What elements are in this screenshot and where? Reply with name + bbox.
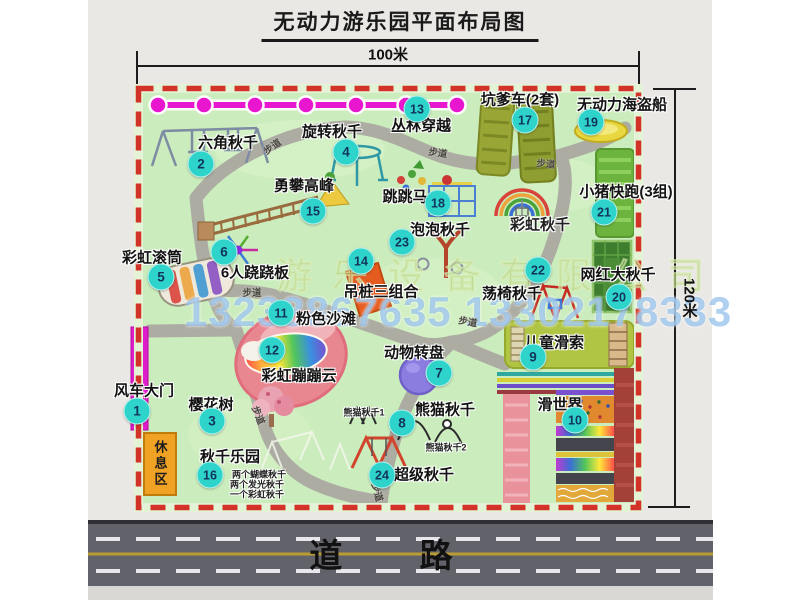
site-plan-page: 无动力游乐园平面布局图 100米 120米 游乐设备有限公司 132338676… <box>0 0 800 600</box>
road-label: 道 路 <box>309 529 486 577</box>
note-label-1: 熊猫秋千1 <box>343 406 384 419</box>
attraction-label-2: 六角秋千 <box>198 132 258 153</box>
walkway-label-5: 步道 <box>457 312 478 329</box>
walkway-label-2: 步道 <box>536 155 556 171</box>
attraction-label-23: 泡泡秋千 <box>410 219 470 240</box>
note-label-0: 彩虹秋千 <box>510 214 570 235</box>
attraction-label-18: 跳跳马 <box>382 186 427 207</box>
walkway-label-3: 步道 <box>242 285 261 299</box>
attraction-badge-24: 24 <box>369 462 396 489</box>
attraction-badge-2: 2 <box>188 151 215 178</box>
attraction-badge-16: 16 <box>197 462 224 489</box>
watermark-phone: 13233867635 13302178333 <box>184 288 733 336</box>
attraction-label-11: 粉色沙滩 <box>296 308 356 329</box>
attraction-badge-7: 7 <box>426 360 453 387</box>
attraction-label-12: 彩虹蹦蹦云 <box>261 365 336 386</box>
attraction-label-15: 勇攀高峰 <box>274 175 334 196</box>
walkway-label-0: 步道 <box>260 135 284 157</box>
attraction-badge-19: 19 <box>578 109 605 136</box>
attraction-label-6: 6人跷跷板 <box>221 262 289 283</box>
attraction-badge-4: 4 <box>333 139 360 166</box>
attraction-badge-20: 20 <box>606 284 633 311</box>
attraction-badge-5: 5 <box>148 264 175 291</box>
page-title: 无动力游乐园平面布局图 <box>262 6 539 42</box>
walkway-label-1: 步道 <box>428 144 449 161</box>
attraction-badge-11: 11 <box>268 300 295 327</box>
attraction-badge-15: 15 <box>300 198 327 225</box>
attraction-badge-10: 10 <box>562 407 589 434</box>
walkway-label-4: 步道 <box>249 404 269 427</box>
attraction-label-22: 荡椅秋千 <box>482 283 542 304</box>
attraction-badge-3: 3 <box>199 408 226 435</box>
attraction-badge-6: 6 <box>211 239 238 266</box>
attraction-badge-8: 8 <box>389 410 416 437</box>
attraction-label-21: 小猪快跑(3组) <box>579 181 672 202</box>
attraction-badge-12: 12 <box>259 337 286 364</box>
note-label-5: 一个彩虹秋千 <box>230 488 284 501</box>
rest-area-label: 休息区 <box>151 440 170 488</box>
attraction-label-20: 网红大秋千 <box>580 264 655 285</box>
attraction-badge-21: 21 <box>591 199 618 226</box>
dimension-label-width: 100米 <box>368 44 408 65</box>
attraction-badge-13: 13 <box>404 96 431 123</box>
attraction-label-5: 彩虹滚筒 <box>122 247 182 268</box>
attraction-label-1: 风车大门 <box>114 380 174 401</box>
attraction-label-4: 旋转秋千 <box>302 121 362 142</box>
attraction-label-24: 超级秋千 <box>394 464 454 485</box>
attraction-badge-17: 17 <box>512 107 539 134</box>
attraction-badge-14: 14 <box>348 248 375 275</box>
attraction-badge-18: 18 <box>425 190 452 217</box>
attraction-label-14: 吊桩三组合 <box>343 281 418 302</box>
attraction-badge-1: 1 <box>124 398 151 425</box>
attraction-badge-23: 23 <box>389 229 416 256</box>
rest-area-zone: 休息区 <box>143 432 177 496</box>
attraction-badge-22: 22 <box>525 257 552 284</box>
attraction-label-8: 熊猫秋千 <box>415 399 475 420</box>
note-label-2: 熊猫秋千2 <box>425 441 466 454</box>
attraction-badge-9: 9 <box>520 344 547 371</box>
dimension-label-height: 120米 <box>679 278 700 318</box>
